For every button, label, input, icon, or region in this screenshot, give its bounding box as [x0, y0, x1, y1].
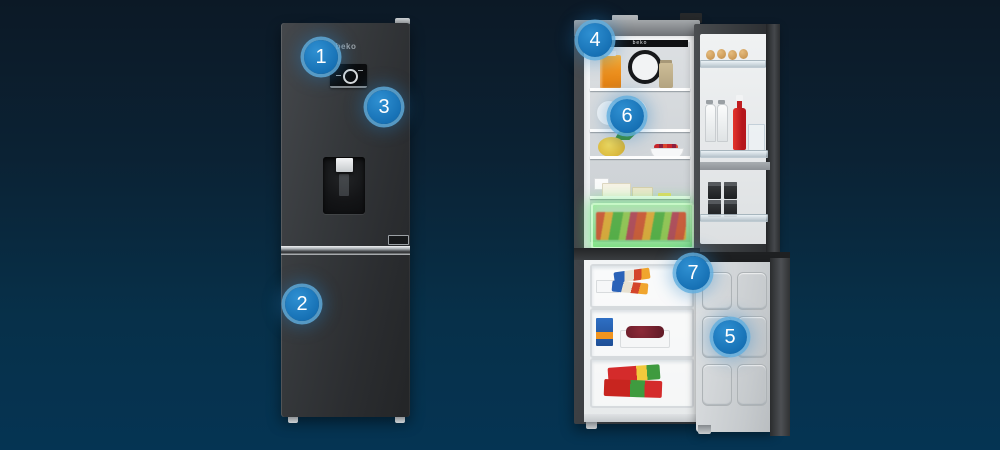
ketchup-bottle — [733, 108, 746, 150]
milk-cap-2 — [718, 100, 725, 104]
badge-number: 6 — [621, 105, 632, 128]
compartment-divider — [574, 248, 700, 260]
callout-badge-1[interactable]: 1 — [304, 40, 338, 74]
glass-shelf-2 — [590, 129, 690, 132]
clear-container — [748, 124, 765, 152]
badge-number: 1 — [315, 46, 326, 69]
egg-4 — [739, 49, 748, 59]
dispenser-glass-area — [339, 174, 349, 196]
bottle-shelf-rail — [700, 150, 768, 158]
freezer-door-caster — [698, 425, 711, 434]
badge-number: 5 — [724, 326, 735, 349]
dark-can-2 — [724, 182, 737, 199]
milk-cap-1 — [706, 100, 713, 104]
glass-shelf-1 — [590, 88, 690, 91]
dispenser-paddle — [336, 158, 353, 172]
badge-number: 3 — [378, 96, 389, 119]
glass-shelf-3 — [590, 156, 690, 159]
callout-badge-5[interactable]: 5 — [713, 320, 747, 354]
badge-number: 2 — [296, 293, 307, 316]
callout-badge-2[interactable]: 2 — [285, 287, 319, 321]
egg-shelf-rail — [700, 60, 766, 68]
frozen-food-box-stripe — [596, 332, 613, 339]
dark-can-1 — [708, 182, 721, 199]
callout-badge-4[interactable]: 4 — [578, 23, 612, 57]
open-fridge-foot-left — [586, 422, 597, 429]
callout-badge-6[interactable]: 6 — [610, 99, 644, 133]
inverter-badge-plate — [388, 235, 409, 245]
closed-fridge-foot-right — [395, 417, 405, 423]
badge-number: 7 — [687, 262, 698, 285]
door-panel-square-5 — [702, 364, 732, 406]
pineapple-body — [598, 137, 625, 157]
egg-3 — [728, 50, 737, 60]
egg-2 — [717, 49, 726, 59]
ketchup-cap — [736, 95, 743, 101]
milk-bottle-1 — [705, 104, 716, 142]
can-shelf-rail — [700, 214, 768, 222]
milk-bottle-2 — [717, 104, 728, 142]
orange-juice-pitcher — [600, 55, 621, 88]
glass-shelf-4 — [590, 196, 690, 199]
temperature-dial-icon — [343, 69, 358, 84]
freezer-door-edge — [770, 258, 790, 436]
door-panel-square-6 — [737, 364, 767, 406]
frozen-meat — [626, 326, 664, 338]
door-divider-trim — [281, 246, 410, 255]
frozen-veg-pack-2 — [604, 379, 663, 398]
door-module-label-bar — [700, 162, 770, 170]
badge-number: 4 — [589, 29, 600, 52]
freezer-bottom-rail — [584, 414, 696, 422]
callout-badge-3[interactable]: 3 — [367, 90, 401, 124]
egg-1 — [706, 50, 715, 60]
scene-background: beko beko — [0, 0, 1000, 450]
round-dish-icon — [628, 50, 662, 84]
closed-fridge-foot-left — [288, 417, 298, 423]
dial-tick-right — [358, 70, 363, 71]
crisper-produce — [596, 212, 686, 240]
preserve-jar — [659, 63, 673, 88]
dial-tick-left — [336, 75, 341, 76]
fresh-door-edge — [766, 24, 780, 252]
door-panel-square-2 — [737, 272, 767, 310]
callout-badge-7[interactable]: 7 — [676, 256, 710, 290]
